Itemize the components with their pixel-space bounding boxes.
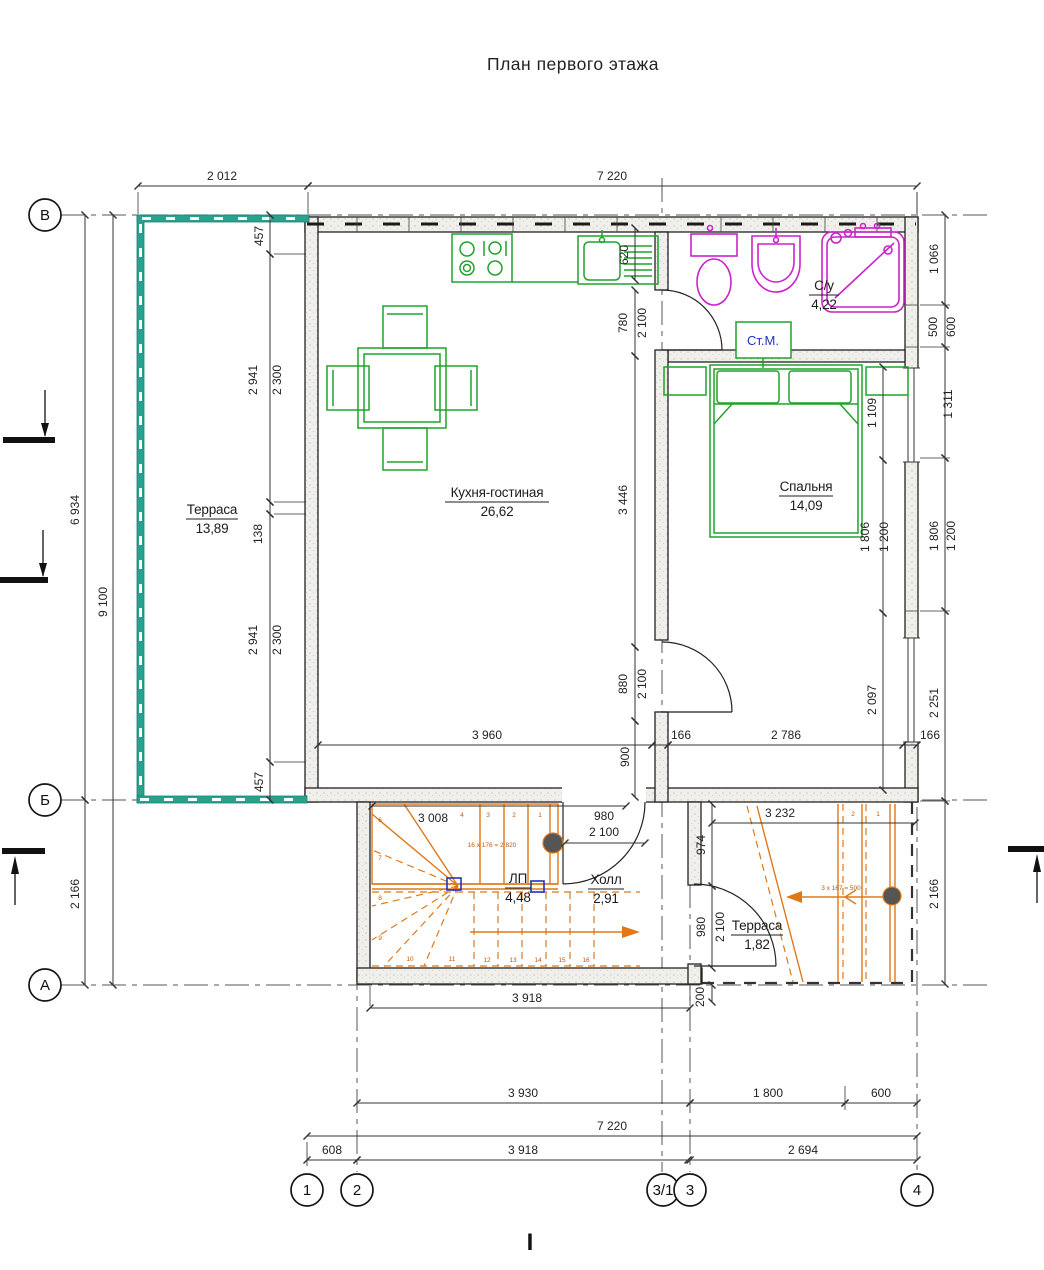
axis-row-b: Б xyxy=(40,792,50,809)
svg-text:2 941: 2 941 xyxy=(246,365,260,395)
svg-text:9: 9 xyxy=(378,935,382,942)
svg-text:2 097: 2 097 xyxy=(865,685,879,715)
svg-text:200: 200 xyxy=(693,987,707,1007)
svg-text:2 100: 2 100 xyxy=(635,308,649,338)
dim-top-2012: 2 012 xyxy=(207,169,237,183)
bedroom-furniture xyxy=(664,365,908,537)
dining-set xyxy=(327,306,477,470)
dim-left-6934: 6 934 xyxy=(68,495,82,525)
svg-text:1 800: 1 800 xyxy=(753,1086,783,1100)
svg-text:2 941: 2 941 xyxy=(246,625,260,655)
dim-top-7220: 7 220 xyxy=(597,169,627,183)
wall-interior-bottom xyxy=(655,712,668,802)
ramp-step-note: 3 х 167 = 500 xyxy=(821,885,861,892)
svg-text:1: 1 xyxy=(876,811,880,818)
room-bathroom-area: 4,22 xyxy=(811,297,836,312)
room-stairs-name: ЛП xyxy=(509,871,527,886)
svg-text:15: 15 xyxy=(558,957,566,964)
room-terrace-name: Терраса xyxy=(187,502,238,517)
svg-text:2 166: 2 166 xyxy=(927,879,941,909)
dim-left-2166: 2 166 xyxy=(68,879,82,909)
dim-kitchen-3960: 3 960 xyxy=(472,728,502,742)
wall-hall-left xyxy=(357,802,370,982)
axis-col-1: 1 xyxy=(303,1182,311,1199)
plumbing-fixtures xyxy=(691,224,904,313)
stove xyxy=(452,234,512,282)
room-bedroom-area: 14,09 xyxy=(790,498,823,513)
svg-text:138: 138 xyxy=(251,524,265,544)
section-label-I: I xyxy=(527,1229,534,1256)
room-hall-name: Холл xyxy=(590,872,621,887)
column-stairs xyxy=(543,833,563,853)
svg-text:1 109: 1 109 xyxy=(865,398,879,428)
dim-sink-620: 620 xyxy=(617,245,631,265)
axis-col-4: 4 xyxy=(913,1182,921,1199)
axis-grid xyxy=(61,178,992,1172)
column-terrace xyxy=(883,887,901,905)
svg-text:2 300: 2 300 xyxy=(270,625,284,655)
svg-text:608: 608 xyxy=(322,1143,342,1157)
terrace-south-ramp: 3 х 167 = 500 2 1 xyxy=(747,804,895,982)
washing-machine-label: Ст.М. xyxy=(747,333,779,348)
axis-row-a: А xyxy=(40,977,50,994)
toilet-bowl xyxy=(697,259,731,305)
floor-plan-drawing: План первого этажа xyxy=(0,0,1044,1270)
svg-text:3 446: 3 446 xyxy=(616,485,630,515)
svg-text:3 008: 3 008 xyxy=(418,811,448,825)
svg-text:6: 6 xyxy=(378,817,382,824)
svg-text:2: 2 xyxy=(851,811,855,818)
stair-upper-flight xyxy=(372,804,558,884)
svg-text:457: 457 xyxy=(252,772,266,792)
svg-text:12: 12 xyxy=(483,957,491,964)
axis-col-2: 2 xyxy=(353,1182,361,1199)
svg-text:600: 600 xyxy=(871,1086,891,1100)
svg-text:1 806: 1 806 xyxy=(927,521,941,551)
room-stairs-area: 4,48 xyxy=(505,890,530,905)
svg-text:980: 980 xyxy=(594,809,614,823)
svg-text:2 251: 2 251 xyxy=(927,688,941,718)
svg-text:2 100: 2 100 xyxy=(589,825,619,839)
svg-text:4: 4 xyxy=(460,812,464,819)
toilet-tank xyxy=(691,234,737,256)
room-bathroom-name: С/у xyxy=(814,278,834,293)
svg-text:2 694: 2 694 xyxy=(788,1143,818,1157)
room-terrace-south-name: Терраса xyxy=(732,918,783,933)
wall-hall-bottom xyxy=(357,968,702,984)
room-terrace-area: 13,89 xyxy=(196,521,229,536)
svg-text:10: 10 xyxy=(406,956,414,963)
doors xyxy=(563,290,776,966)
wall-interior-mid xyxy=(655,350,668,640)
svg-text:2 300: 2 300 xyxy=(270,365,284,395)
bathroom-door-arc xyxy=(662,290,722,350)
svg-text:600: 600 xyxy=(944,317,958,337)
svg-text:457: 457 xyxy=(252,226,266,246)
wall-hall-terrace-lower xyxy=(688,964,701,984)
svg-text:3: 3 xyxy=(486,812,490,819)
svg-text:166: 166 xyxy=(671,728,691,742)
svg-text:8: 8 xyxy=(378,895,382,902)
room-bedroom-name: Спальня xyxy=(780,479,833,494)
svg-text:3 918: 3 918 xyxy=(508,1143,538,1157)
svg-text:974: 974 xyxy=(694,835,708,855)
wall-interior-top xyxy=(655,232,668,290)
svg-text:166: 166 xyxy=(920,728,940,742)
dimensions: 2 012 7 220 6 934 2 166 9 100 457 2 941 … xyxy=(68,169,958,1160)
svg-text:1 311: 1 311 xyxy=(941,389,955,418)
stair-step-note: 16 х 176 = 2 820 xyxy=(468,842,517,849)
svg-text:7: 7 xyxy=(378,855,382,862)
svg-text:11: 11 xyxy=(449,956,456,963)
bedroom-door-arc xyxy=(662,642,732,712)
svg-text:14: 14 xyxy=(534,957,542,964)
room-terrace-south-area: 1,82 xyxy=(744,937,769,952)
room-kitchen-area: 26,62 xyxy=(481,504,514,519)
svg-text:980: 980 xyxy=(694,917,708,937)
pillow-right xyxy=(789,371,851,403)
walls xyxy=(305,217,918,984)
floor-plan-sheet: План первого этажа xyxy=(0,0,1044,1270)
svg-text:3 930: 3 930 xyxy=(508,1086,538,1100)
page-title: План первого этажа xyxy=(487,54,659,74)
entry-door-opening xyxy=(562,786,646,804)
svg-text:1: 1 xyxy=(538,812,542,819)
pillow-left xyxy=(717,371,779,403)
axis-row-v: В xyxy=(40,207,50,224)
axis-col-3: 3 xyxy=(686,1182,694,1199)
svg-text:780: 780 xyxy=(616,313,630,333)
dining-table xyxy=(358,348,446,428)
svg-text:7 220: 7 220 xyxy=(597,1119,627,1133)
svg-text:3 232: 3 232 xyxy=(765,806,795,820)
svg-text:2 786: 2 786 xyxy=(771,728,801,742)
svg-text:1 806: 1 806 xyxy=(858,522,872,552)
svg-text:2 100: 2 100 xyxy=(713,912,727,942)
svg-text:1 200: 1 200 xyxy=(877,522,891,552)
nightstand-left xyxy=(664,367,706,395)
svg-text:500: 500 xyxy=(926,317,940,337)
wall-left xyxy=(305,217,318,802)
svg-text:880: 880 xyxy=(616,674,630,694)
chair-bottom xyxy=(383,428,427,470)
dim-left-9100: 9 100 xyxy=(96,587,110,617)
bed xyxy=(710,365,862,537)
stair-post-right xyxy=(531,881,544,892)
axis-col-3-1: 3/1 xyxy=(653,1182,674,1199)
room-hall-area: 2,91 xyxy=(593,891,618,906)
svg-text:13: 13 xyxy=(509,957,517,964)
svg-text:2 100: 2 100 xyxy=(635,669,649,699)
svg-text:1 066: 1 066 xyxy=(927,244,941,274)
svg-text:2: 2 xyxy=(512,812,516,819)
chair-top xyxy=(383,306,427,348)
svg-text:16: 16 xyxy=(582,957,590,964)
svg-text:1 200: 1 200 xyxy=(944,521,958,551)
svg-text:3 918: 3 918 xyxy=(512,991,542,1005)
nightstand-right xyxy=(866,367,908,395)
svg-text:900: 900 xyxy=(618,747,632,767)
room-kitchen-name: Кухня-гостиная xyxy=(451,485,544,500)
